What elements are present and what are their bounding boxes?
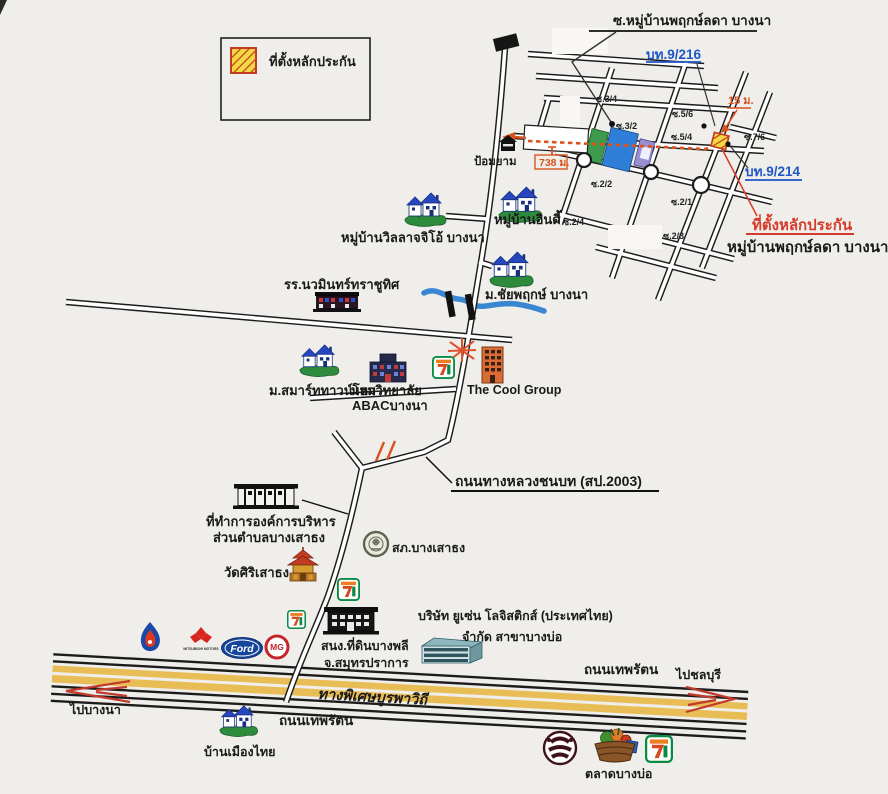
village-blocks — [584, 127, 655, 172]
seven-eleven-icon — [433, 357, 454, 378]
label-dist-738m: 738 ม. — [539, 157, 569, 169]
police-emblem-icon — [364, 532, 388, 556]
label-thepharat-west: ถนนเทพรัตน — [279, 713, 354, 728]
label-temple: วัดศิริเสาธง — [224, 565, 289, 580]
scanned-map-page: ที่ตั้งหลักประกัน ทางพิเศษบูรพาวิถี — [0, 0, 888, 794]
map-dot — [725, 141, 730, 146]
label-market: ตลาดบางบ่อ — [585, 767, 652, 781]
village-icon-chaiyapruek — [490, 252, 533, 287]
label-soi-entry-title: ซ.หมู่บ้านพฤกษ์ลดา บางนา — [613, 12, 771, 29]
ptt-logo-icon — [141, 622, 160, 651]
label-baan-muang-thai: บ้านเมืองไทย — [204, 744, 275, 759]
label-university-line2: ABACบางนา — [352, 398, 428, 413]
village-icon-villaggio — [405, 193, 446, 227]
mg-label: MG — [270, 642, 284, 652]
ford-logo-icon: Ford — [222, 638, 263, 659]
ford-label: Ford — [230, 643, 254, 655]
soi-label-2-2: ซ.2/2 — [591, 179, 612, 189]
seven-eleven-icon — [288, 611, 305, 628]
soi-label-3-4: ซ.3/4 — [596, 94, 617, 104]
cool-group-building-icon — [482, 347, 503, 383]
round-emblem-icon — [544, 732, 576, 764]
label-collateral-site: ที่ตั้งหลักประกัน — [752, 213, 853, 234]
mitsubishi-label: MITSUBISHI MOTORS — [183, 647, 219, 651]
village-icon-smart-townhome — [300, 345, 339, 377]
whiteout-patch — [608, 225, 662, 249]
label-chaiyapruek: ม.ชัยพฤกษ์ บางนา — [485, 287, 588, 302]
label-rural-highway: ถนนทางหลวงชนบท (สป.2003) — [455, 473, 642, 489]
label-to-bangna: ไปบางนา — [68, 702, 121, 717]
bridge-icon — [445, 291, 476, 321]
roads-fill — [66, 48, 776, 702]
label-route-bt-9-216: บท.9/216 — [646, 47, 701, 62]
soi-label-7-6: ซ.7/6 — [744, 132, 765, 142]
label-district-office-line2: ส่วนตำบลบางเสาธง — [213, 530, 325, 545]
seven-eleven-icon — [646, 736, 672, 762]
soi-label-2-3: ซ.2/3 — [663, 231, 684, 241]
label-to-chonburi: ไปชลบุรี — [674, 667, 721, 683]
label-yusen-line2: จำกัด สาขาบางบ่อ — [462, 630, 562, 644]
label-dist-15m: 15 ม. — [728, 95, 754, 107]
label-district-office-line1: ที่ทำการองค์การบริหาร — [206, 512, 336, 529]
abac-university-icon — [370, 354, 406, 382]
label-route-bt-9-214: บท.9/214 — [745, 164, 800, 179]
district-office-icon — [233, 484, 299, 509]
legend-box: ที่ตั้งหลักประกัน — [221, 38, 370, 120]
land-office-icon — [323, 607, 379, 635]
whiteout-patch — [560, 96, 580, 130]
dist-738m-box: 738 ม. — [535, 155, 569, 169]
village-entrance-gate — [523, 125, 588, 153]
collateral-marker-icon — [711, 132, 729, 149]
legend-hatch-swatch-icon — [231, 48, 256, 73]
label-police-station: สภ.บางเสาธง — [392, 541, 465, 555]
temple-icon — [288, 547, 318, 581]
soi-label-2-1: ซ.2/1 — [671, 197, 692, 207]
label-school: รร.นวมินทร์ทราชูทิศ — [284, 277, 400, 293]
soi-label-5-4: ซ.5/4 — [671, 132, 692, 142]
label-university-line1: มหาวิทยาลัย — [351, 383, 422, 398]
label-village-name: หมู่บ้านพฤกษ์ลดา บางนา — [727, 238, 888, 257]
label-indy: หมู่บ้านอินดี้ — [494, 209, 562, 228]
label-guard-post: ป้อมยาม — [474, 155, 517, 168]
map-svg: ที่ตั้งหลักประกัน ทางพิเศษบูรพาวิถี — [0, 0, 888, 794]
label-villaggio: หมู่บ้านวิลลาจจิโอ้ บางนา — [341, 229, 485, 246]
scan-artifact — [0, 0, 7, 15]
label-yusen-line1: บริษัท ยูเซ่น โลจิสติกส์ (ประเทศไทย) — [418, 608, 613, 624]
mitsubishi-logo-icon: MITSUBISHI MOTORS — [183, 627, 219, 651]
label-land-office-line1: สนง.ที่ดินบางพลี — [321, 637, 409, 653]
soi-label-3-2: ซ.3/2 — [616, 121, 637, 131]
label-thepharat-east: ถนนเทพรัตน — [584, 662, 659, 677]
map-dot — [701, 123, 706, 128]
mg-logo-icon: MG — [266, 636, 288, 658]
label-land-office-line2: จ.สมุทรปราการ — [324, 656, 409, 671]
road-end-cap — [493, 33, 519, 51]
legend-label: ที่ตั้งหลักประกัน — [269, 51, 356, 69]
label-cool-group: The Cool Group — [467, 383, 562, 397]
school-icon — [313, 292, 361, 312]
seven-eleven-icon — [338, 579, 359, 600]
soi-label-2-4: ซ.2/4 — [563, 217, 584, 227]
soi-label-5-6: ซ.5/6 — [672, 109, 693, 119]
